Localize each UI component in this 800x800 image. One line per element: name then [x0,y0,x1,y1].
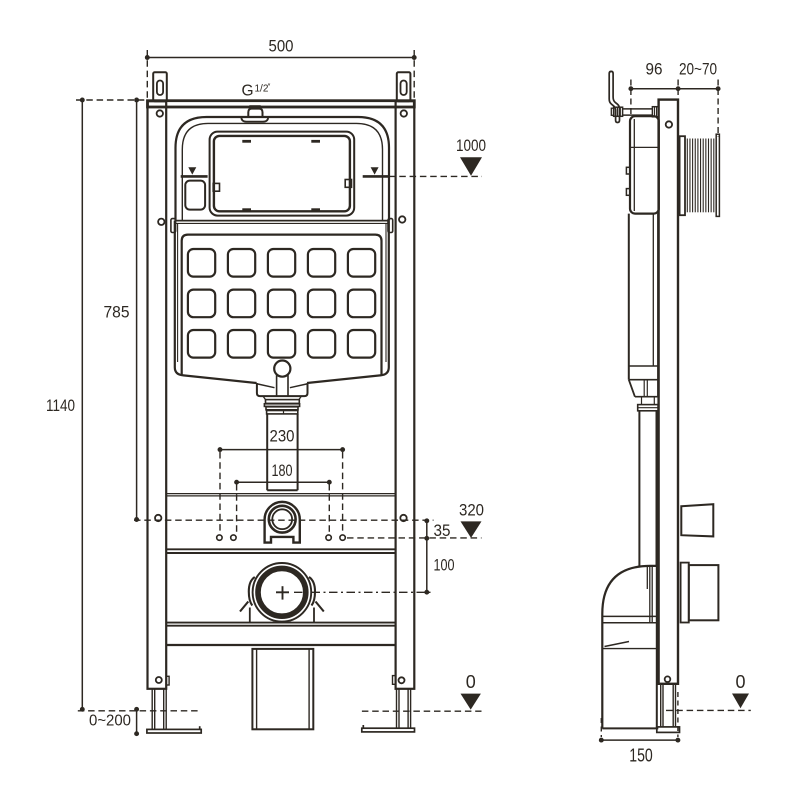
svg-text:180: 180 [272,461,293,480]
svg-text:1140: 1140 [46,396,75,415]
svg-text:20~70: 20~70 [679,60,717,79]
svg-text:150: 150 [629,746,653,766]
svg-text:1000: 1000 [456,136,486,155]
svg-text:320: 320 [459,500,484,519]
svg-text:100: 100 [434,556,455,575]
svg-text:0~200: 0~200 [89,713,131,730]
svg-text:0: 0 [735,672,745,692]
svg-text:0: 0 [466,672,476,692]
svg-text:500: 500 [269,37,294,56]
svg-text:″: ″ [268,82,271,91]
svg-text:96: 96 [646,60,663,79]
svg-text:785: 785 [104,303,130,322]
svg-text:230: 230 [270,427,295,446]
svg-text:35: 35 [434,521,451,540]
svg-text:G: G [242,83,254,100]
